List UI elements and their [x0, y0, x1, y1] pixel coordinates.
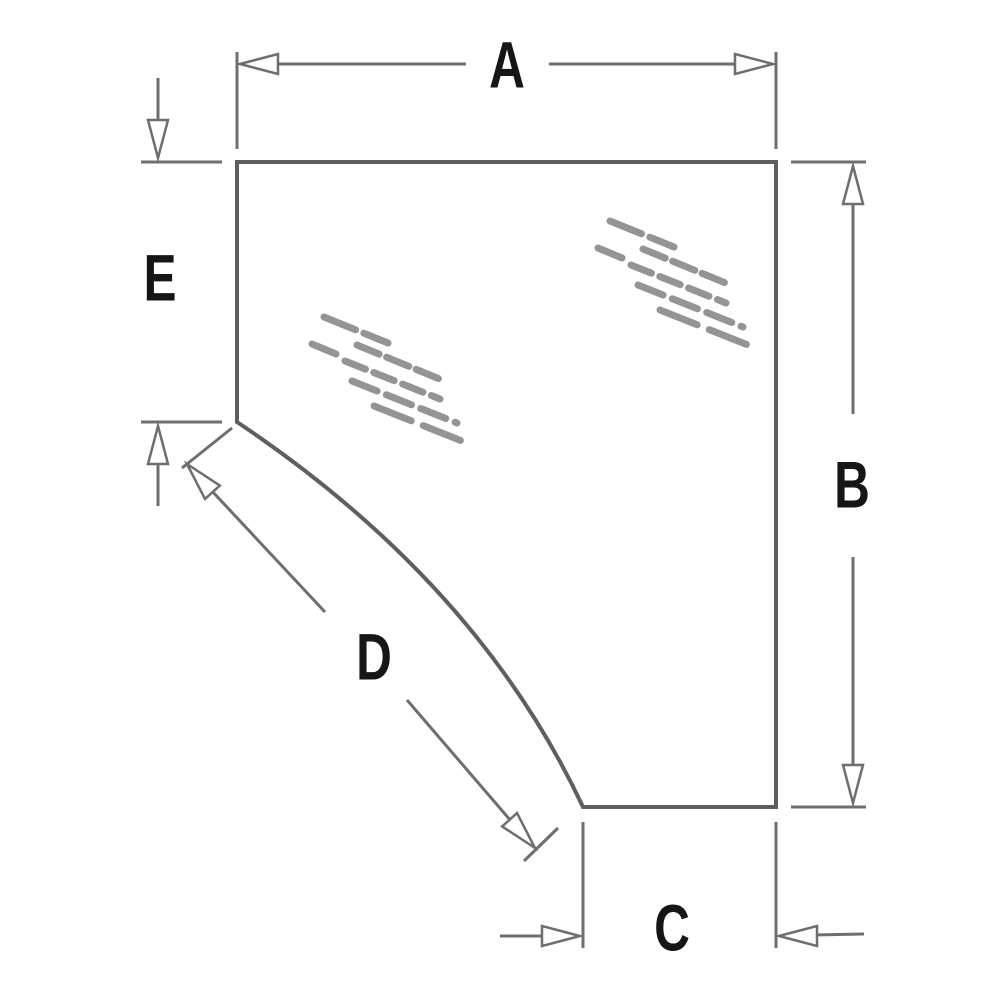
dim-b-arrow-top — [843, 166, 863, 204]
dim-c-tail-right — [813, 934, 864, 935]
glass-shine-dash-line — [357, 345, 442, 380]
glass-shine-cluster — [598, 221, 758, 349]
dim-c-arrow-left — [542, 926, 580, 946]
glass-shine-dash-line — [598, 248, 622, 258]
dimension-label-e: E — [143, 245, 176, 311]
glass-shine-cluster — [312, 317, 472, 445]
technical-drawing-page: A B C D E — [0, 0, 1000, 1000]
glass-shine-dash-line — [345, 361, 440, 399]
dimension-label-d: D — [356, 624, 392, 690]
glass-shine-dash-line — [312, 344, 336, 354]
glass-shine-dash-line — [631, 265, 726, 303]
glass-shine-dash-line — [324, 317, 388, 343]
glass-shine-dash-line — [643, 249, 728, 284]
dim-d-line-lower — [407, 700, 511, 821]
glass-panel-outline — [237, 162, 776, 807]
dimension-label-b: B — [834, 452, 870, 518]
glass-shine-dash-line — [610, 221, 674, 247]
dim-c-arrow-right — [779, 926, 817, 946]
dim-e-arrow-top — [148, 120, 168, 158]
dim-a-arrow-right — [735, 54, 773, 74]
dim-d-tick-top — [182, 428, 232, 468]
dimension-label-a: A — [489, 32, 525, 98]
dim-a-arrow-left — [240, 54, 278, 74]
dim-e-arrow-bottom — [148, 426, 168, 464]
dim-d-line-upper — [211, 490, 325, 612]
dim-b-arrow-bottom — [843, 765, 863, 803]
dimension-label-c: C — [654, 895, 690, 961]
